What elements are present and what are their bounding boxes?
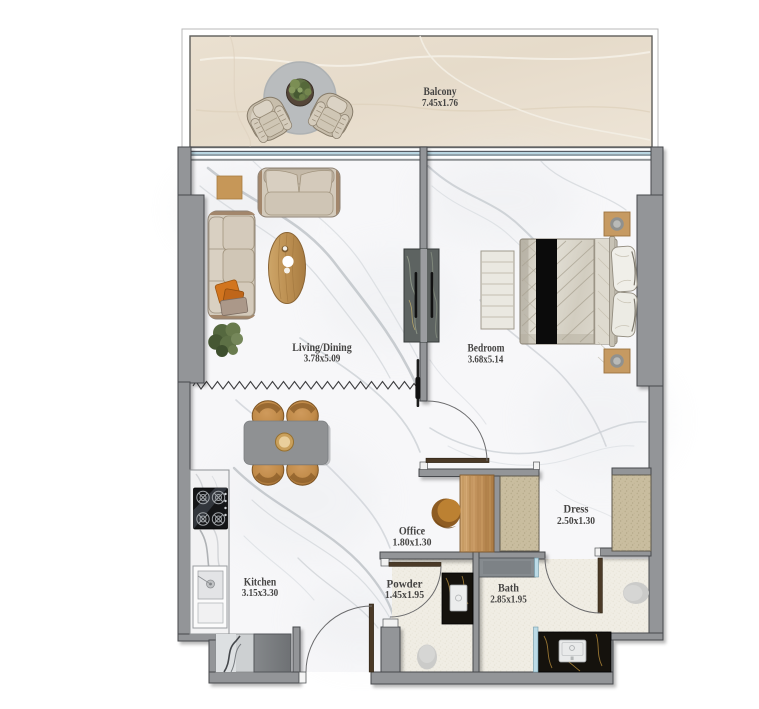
svg-text:3.15x3.30: 3.15x3.30 xyxy=(242,587,278,599)
svg-text:3.68x5.14: 3.68x5.14 xyxy=(468,354,504,366)
svg-text:1.45x1.95: 1.45x1.95 xyxy=(385,589,424,601)
svg-text:2.85x1.95: 2.85x1.95 xyxy=(490,594,527,606)
svg-text:Dress: Dress xyxy=(564,504,590,516)
svg-text:2.50x1.30: 2.50x1.30 xyxy=(557,515,595,527)
svg-text:1.80x1.30: 1.80x1.30 xyxy=(393,537,432,549)
svg-text:7.45x1.76: 7.45x1.76 xyxy=(422,97,459,109)
svg-text:3.78x5.09: 3.78x5.09 xyxy=(304,353,341,365)
svg-text:Balcony: Balcony xyxy=(424,86,457,98)
svg-text:Office: Office xyxy=(399,525,425,537)
